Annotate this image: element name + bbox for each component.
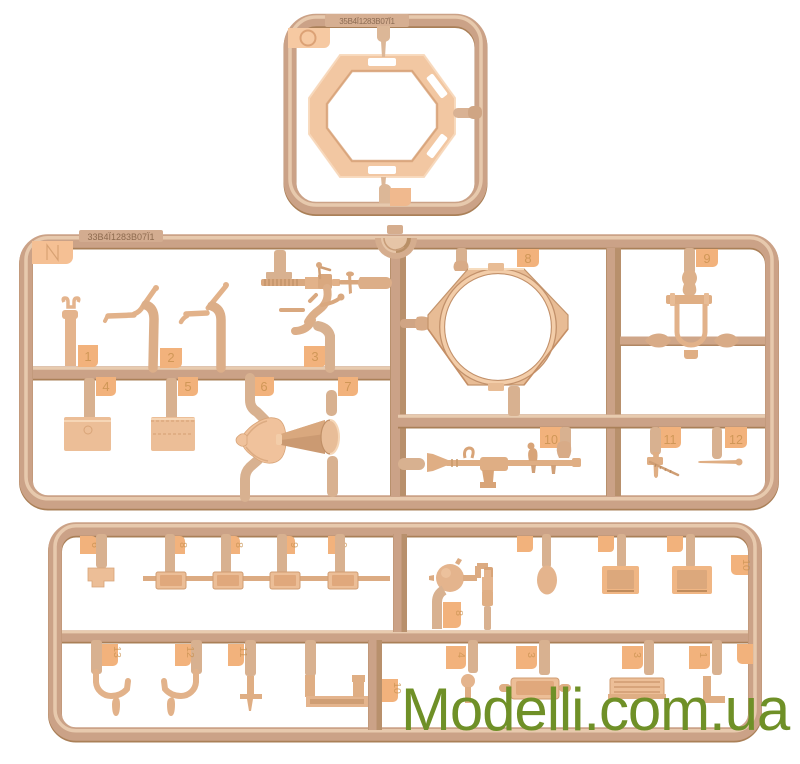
svg-text:8: 8 [233,542,245,548]
svg-text:3: 3 [311,349,318,364]
svg-text:33B4Ï1283B07Ï1: 33B4Ï1283B07Ï1 [87,232,154,242]
svg-text:13: 13 [111,646,123,658]
svg-text:1: 1 [697,652,709,658]
svg-text:5: 5 [184,379,191,394]
svg-text:8: 8 [524,251,531,266]
svg-text:2: 2 [167,350,174,365]
svg-text:3: 3 [631,652,643,658]
svg-text:Modelli.com.ua: Modelli.com.ua [401,676,791,743]
svg-text:10: 10 [740,559,752,571]
svg-text:4: 4 [455,652,467,658]
svg-text:1: 1 [84,349,91,364]
svg-text:11: 11 [237,647,249,658]
svg-text:9: 9 [703,251,710,266]
svg-text:7: 7 [344,379,351,394]
svg-text:6: 6 [260,379,267,394]
svg-text:11: 11 [664,433,677,447]
svg-text:8: 8 [453,610,465,616]
svg-text:12: 12 [729,433,743,447]
svg-text:4: 4 [102,379,109,394]
svg-text:10: 10 [544,433,558,447]
svg-text:3: 3 [525,652,537,658]
svg-text:12: 12 [184,646,196,658]
svg-text:8: 8 [177,542,189,548]
svg-text:35B4Ï1283B07Ï1: 35B4Ï1283B07Ï1 [339,17,395,26]
svg-text:9: 9 [288,542,300,548]
